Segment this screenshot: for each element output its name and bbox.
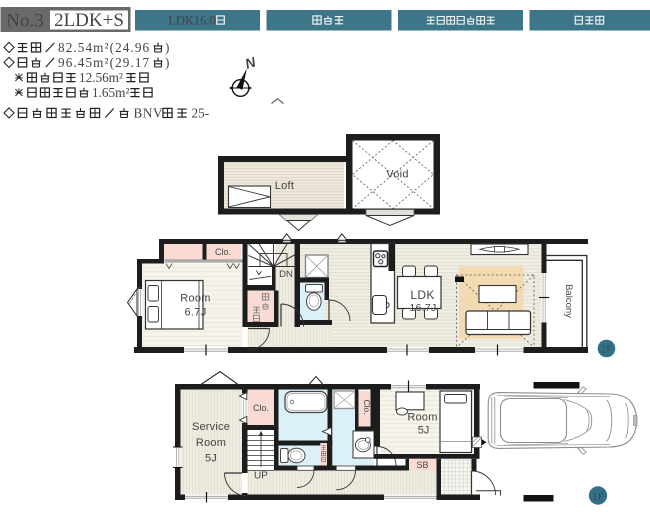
- svg-text:Clo.: Clo.: [215, 247, 231, 257]
- svg-text:LDK: LDK: [410, 288, 434, 302]
- svg-text:Balcony: Balcony: [563, 284, 574, 318]
- svg-text:Room: Room: [196, 437, 226, 449]
- svg-text:Void: Void: [386, 169, 409, 181]
- svg-text:BNV: BNV: [134, 106, 164, 121]
- svg-text:Room: Room: [407, 412, 437, 424]
- svg-text:5J: 5J: [205, 453, 217, 465]
- svg-text:Service: Service: [192, 421, 230, 433]
- svg-text:): ): [165, 55, 169, 70]
- svg-text:UP: UP: [254, 471, 268, 482]
- svg-text:DN: DN: [279, 269, 293, 280]
- svg-text:12.56m²: 12.56m²: [79, 70, 123, 85]
- svg-text:16.7J: 16.7J: [409, 302, 436, 314]
- svg-text:Clo.: Clo.: [362, 399, 372, 414]
- svg-text:Clo.: Clo.: [253, 403, 269, 413]
- svg-text:1F: 1F: [592, 491, 604, 503]
- svg-text:LDK16.0: LDK16.0: [168, 14, 216, 28]
- svg-text:No.3: No.3: [6, 11, 43, 32]
- svg-text:Loft: Loft: [275, 180, 295, 192]
- svg-text:SB: SB: [416, 460, 428, 470]
- svg-text:2LDK+S: 2LDK+S: [54, 10, 124, 31]
- svg-text:2F: 2F: [601, 345, 612, 356]
- svg-text:96.45m²(29.17: 96.45m²(29.17: [58, 55, 150, 70]
- svg-text:1.65m²: 1.65m²: [92, 85, 129, 100]
- svg-text:25-: 25-: [192, 106, 210, 121]
- svg-text:6.7J: 6.7J: [185, 307, 207, 319]
- svg-text:5J: 5J: [418, 425, 430, 437]
- svg-text:Room: Room: [180, 293, 211, 305]
- svg-text:82.54m²(24.96: 82.54m²(24.96: [58, 40, 150, 55]
- svg-text:): ): [165, 40, 169, 55]
